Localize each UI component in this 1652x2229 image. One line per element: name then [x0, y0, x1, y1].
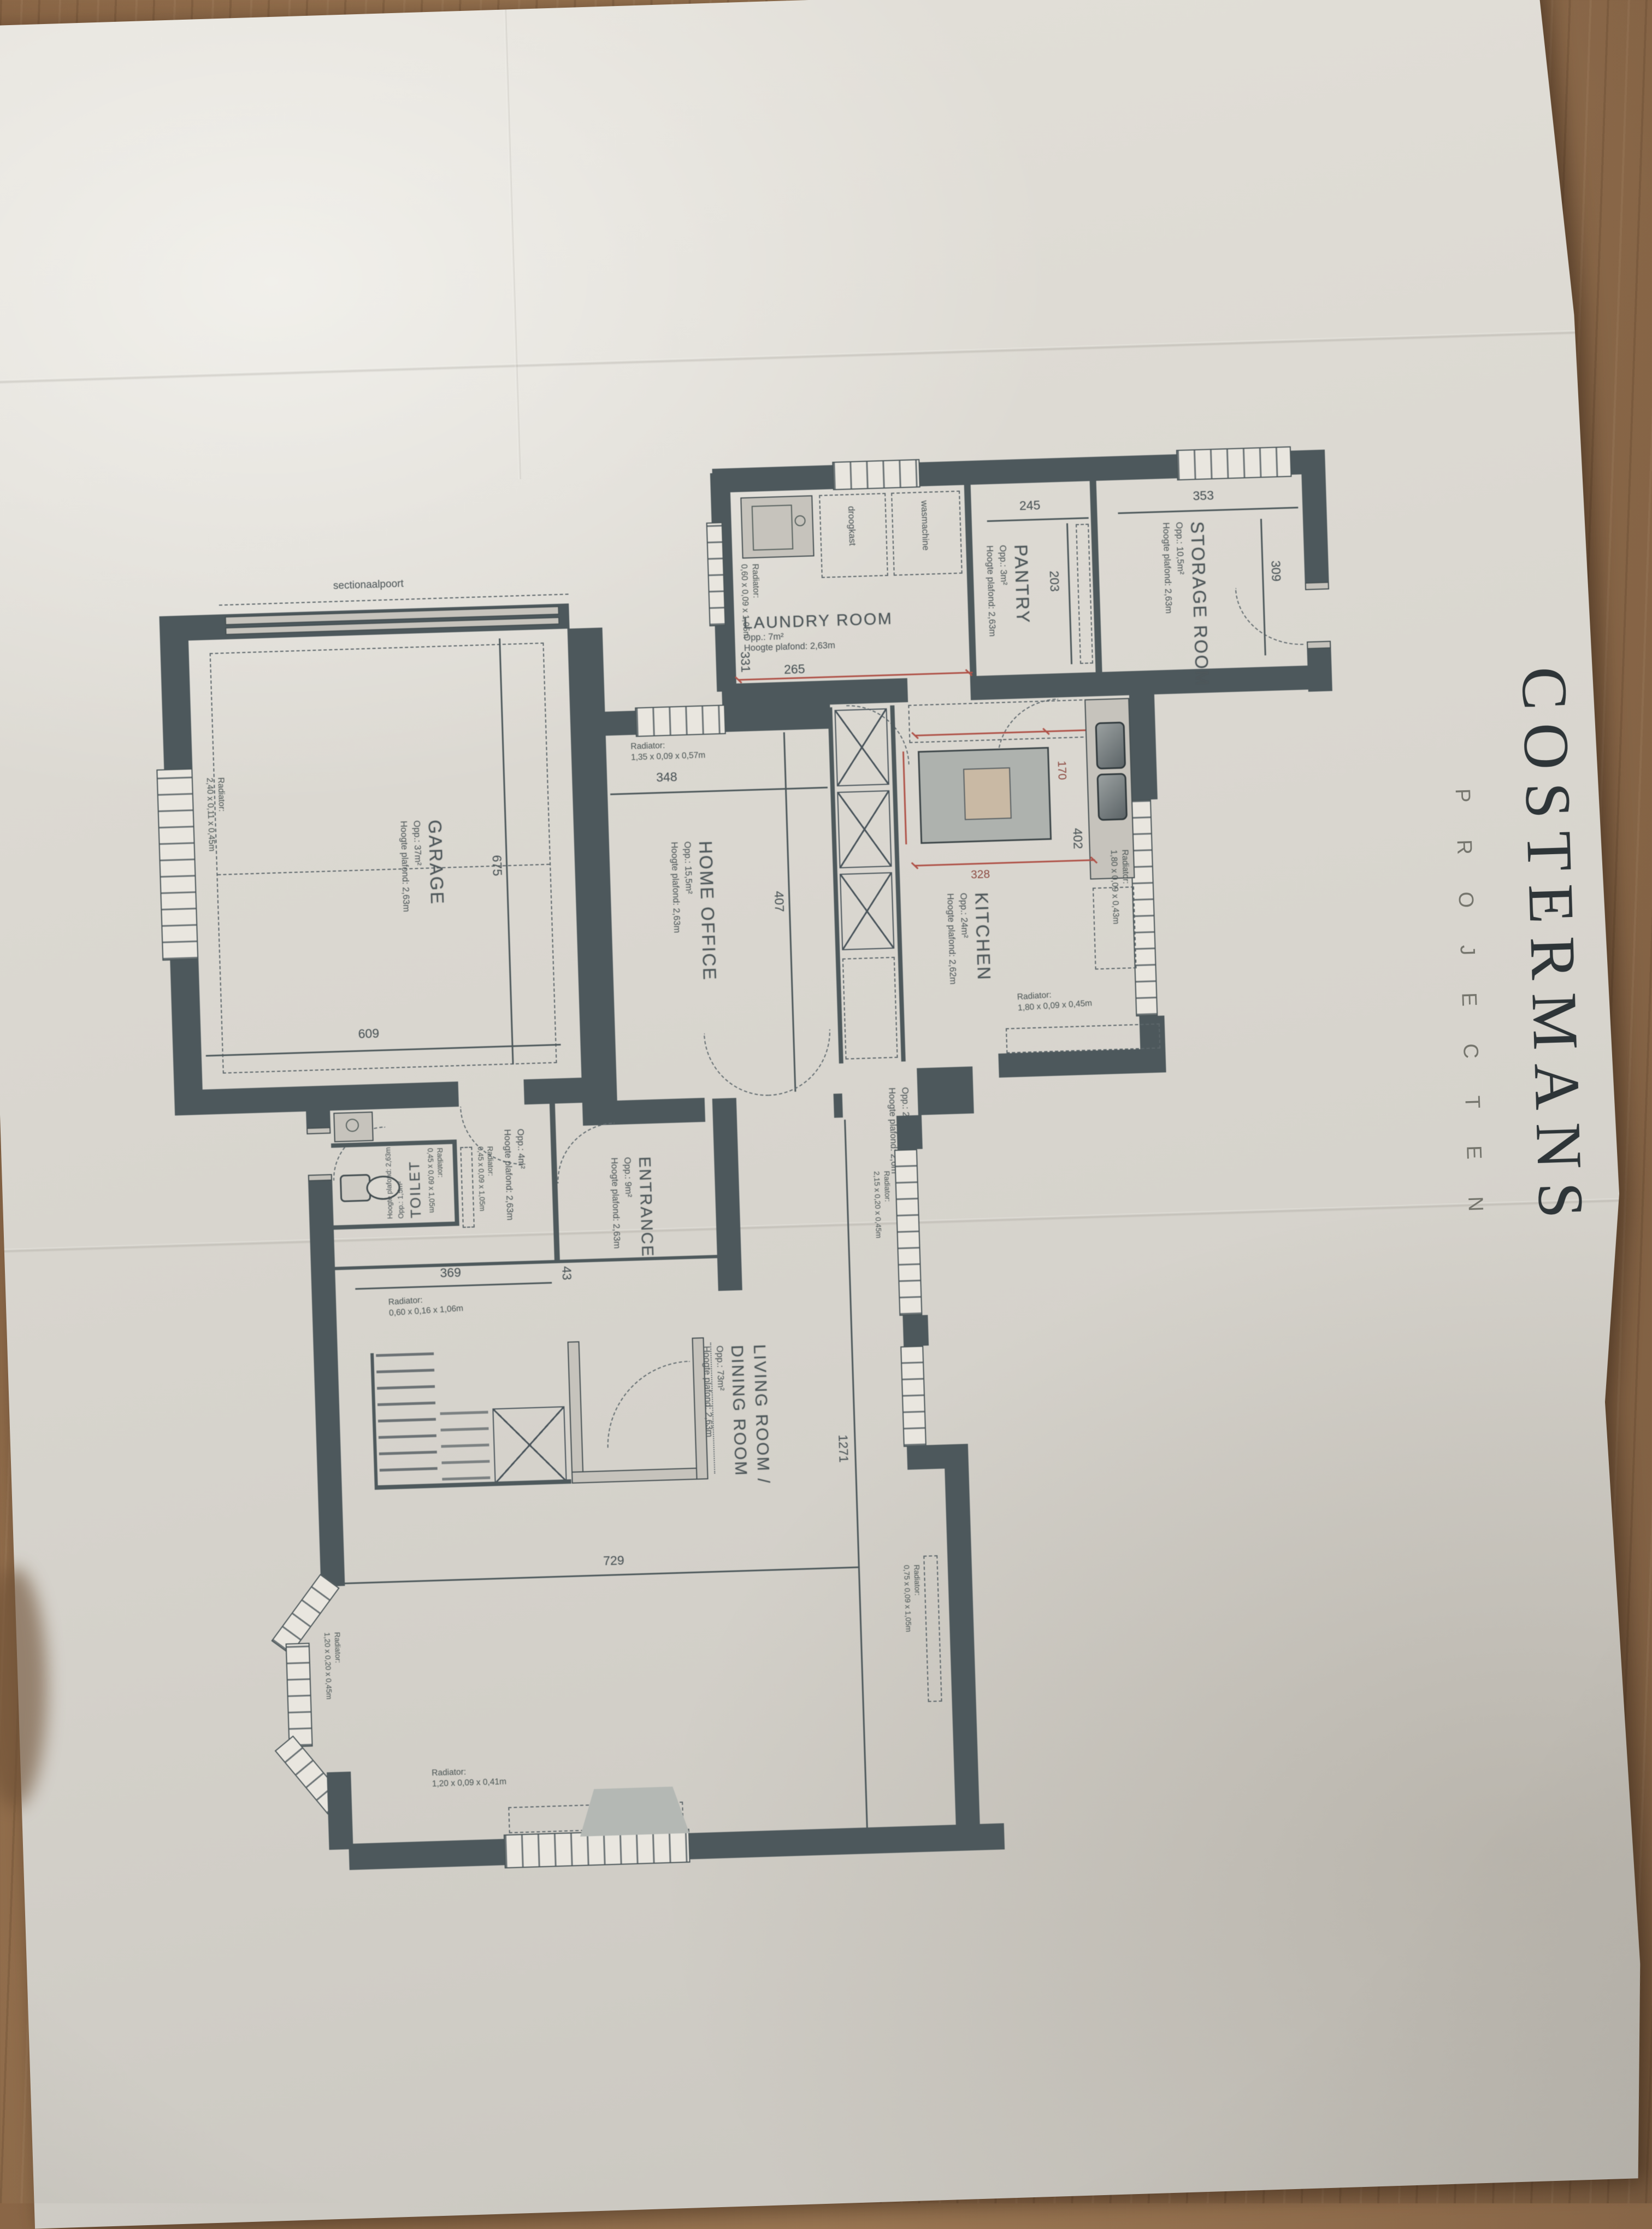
dim-label: 407: [771, 891, 787, 912]
radiator-label: Radiator: 1,80 x 0,09 x 0,45m: [1017, 987, 1093, 1014]
dim-label: 609: [358, 1026, 379, 1042]
radiator-label: Radiator: 1,20 x 0,09 x 0,41m: [432, 1766, 506, 1790]
room-area: Opp.: 73m²: [714, 1345, 729, 1486]
front-door-arc: [605, 1361, 693, 1449]
staircase: [440, 1411, 491, 1486]
wall-passage: [917, 1067, 974, 1115]
garage-parking-outline: [210, 643, 557, 1074]
dim-label: 203: [1047, 571, 1062, 592]
dim-label: 402: [1070, 828, 1085, 849]
wall-living-jog: [907, 1444, 969, 1469]
laundry-window: [832, 459, 921, 490]
wall-garage-bottom: [174, 1081, 459, 1115]
floor-plan: 353 309 STORAGE ROOM Opp.: 10,5m² Hoogte…: [56, 415, 1403, 1963]
built-in-closet: [837, 790, 892, 868]
side-door-jamb: [306, 1127, 331, 1134]
living-window-right: [900, 1346, 927, 1447]
dim-label: 265: [784, 662, 805, 677]
room-name: HOME OFFICE: [695, 840, 720, 981]
storage-door-arc: [1235, 586, 1303, 647]
room-label-garage: GARAGE Opp.: 37m² Hoogte plafond: 2,63m: [395, 820, 447, 913]
wall-office-bottom: [617, 1098, 705, 1125]
wall-living-right: [896, 1115, 923, 1150]
dim-label: 348: [656, 769, 677, 785]
dim-label: 369: [440, 1265, 461, 1280]
red-dim-line: [914, 859, 1095, 866]
kitchen-sink: [1096, 773, 1128, 821]
room-label-laundry: LAUNDRY ROOM Opp.: 7m² Hoogte plafond: 2…: [743, 610, 894, 654]
built-in-closet: [840, 872, 894, 950]
bay-window: [286, 1643, 313, 1747]
dim-label: 729: [603, 1553, 624, 1568]
room-ceiling: Hoogte plafond: 2,63m: [383, 1147, 394, 1219]
dim-label: 43: [559, 1266, 574, 1280]
room-ceiling: Hoogte plafond: 2,63m: [609, 1157, 622, 1259]
room-name: STORAGE ROOM: [1187, 521, 1212, 687]
pantry-shelving: [1076, 524, 1093, 664]
brand-logo: COSTERMANS: [1507, 666, 1605, 1433]
dim-label: 309: [1268, 560, 1283, 581]
laundry-window-left: [706, 522, 726, 626]
radiator-label: Radiator: 2,15 x 0,20 x 0,45m: [872, 1171, 894, 1238]
room-name: KITCHEN: [971, 892, 994, 984]
dim-line: [1118, 507, 1298, 514]
dim-line: [355, 1282, 552, 1290]
room-label-toilet: Hoogte plafond: 2,63m Opp.: 1,5m² TOILET: [383, 1146, 427, 1219]
fireplace: [579, 1786, 689, 1837]
room-name: TOILET: [405, 1146, 424, 1218]
wall-garage-bottom: [523, 1077, 617, 1104]
room-ceiling: Hoogte plafond: 2,63m: [398, 821, 411, 912]
dim-label: 675: [489, 855, 505, 876]
room-area: Opp.: 9m²: [622, 1157, 635, 1258]
porch-wall: [571, 1467, 709, 1484]
radiator-label: Radiator: 0,60 x 0,16 x 1,06m: [388, 1292, 464, 1319]
garage-door-label: sectionaalpoort: [333, 578, 404, 592]
room-area: Opp.: 1,5m²: [394, 1146, 405, 1219]
room-ceiling: Hoogte plafond: 2,63m: [1160, 522, 1176, 688]
radiator-label: Radiator: 1,20 x 0,20 x 0,45m: [322, 1632, 344, 1699]
staircase: [376, 1352, 438, 1487]
dim-line: [1066, 524, 1072, 664]
wall-toilet: [334, 1221, 459, 1230]
radiator-label: Radiator: 1,80 x 0,09 x 0,43m: [1108, 849, 1132, 924]
paper-fold-crease: [0, 328, 1629, 385]
room-ceiling: Hoogte plafond: 2,63m: [669, 842, 683, 982]
office-window: [635, 704, 726, 737]
wall-toilet: [452, 1139, 459, 1226]
paper: COSTERMANS PROJECTEN 353 309 STORAGE ROO…: [0, 0, 1652, 2228]
garage-window: [156, 768, 198, 961]
room-area: Opp.: 10,5m²: [1173, 522, 1189, 687]
stair-void: [492, 1406, 567, 1484]
built-in-cabinet: [842, 957, 898, 1060]
room-area: Opp.: 15,5m²: [682, 841, 697, 981]
wall-living-right: [902, 1315, 929, 1346]
room-ceiling: Hoogte plafond: 2,63m: [984, 545, 997, 637]
dim-line: [844, 1120, 868, 1827]
kitchen-sink: [1095, 721, 1126, 769]
wall-hall-left: [308, 1180, 335, 1269]
wall-pantry-bottom: [970, 672, 1102, 701]
wall-living-right-low: [945, 1468, 981, 1851]
dim-label: 1271: [835, 1434, 851, 1463]
dim-line: [987, 517, 1089, 522]
living-radiator-box: [923, 1555, 942, 1702]
wall-laundry-pantry: [964, 485, 977, 678]
room-name: DINING ROOM: [727, 1345, 751, 1485]
floorplan-sheet: COSTERMANS PROJECTEN 353 309 STORAGE ROO…: [0, 0, 1652, 2228]
wall-storage-bottom: [1099, 665, 1332, 696]
office-door-arc: [767, 1030, 833, 1096]
wall-hall-left: [306, 1111, 331, 1128]
radiator-label: Radiator: 1,35 x 0,09 x 0,57m: [630, 739, 705, 764]
wall-storage-right: [1301, 450, 1329, 589]
room-ceiling: Hoogte plafond: 2,62m: [945, 893, 958, 984]
brand-sublogo: PROJECTEN: [1450, 788, 1492, 1368]
room-area: Opp.: 24m²: [958, 893, 971, 984]
dim-line: [344, 1567, 859, 1585]
room-label-hall: Opp.: 4m² Hoogte plafond: 2,63m: [499, 1128, 528, 1220]
dim-label: 331: [737, 651, 753, 673]
storage-door-jamb: [1305, 582, 1329, 590]
room-area: Opp.: 4m²: [515, 1128, 528, 1220]
living-window-right: [894, 1149, 923, 1316]
porch-wall: [568, 1341, 584, 1484]
red-dim-line: [902, 751, 907, 844]
storage-door-jamb: [1307, 641, 1331, 649]
radiator-label: Radiator: 0,45 x 0,09 x 1,05m: [425, 1148, 446, 1213]
wall-living-left: [311, 1269, 345, 1586]
wall-kitchen-right: [1129, 695, 1158, 800]
storage-window: [1176, 446, 1292, 481]
wall-garage-office: [570, 711, 618, 1126]
wall-laundry-bottom: [722, 678, 908, 708]
room-area: Opp.: 3m²: [997, 545, 1010, 636]
wall-garage-right: [568, 627, 605, 713]
wall-kitchen-bottom: [998, 1048, 1166, 1078]
wall-office-bottom: [834, 1093, 843, 1118]
room-name: PANTRY: [1010, 544, 1034, 636]
appliance-label: droogkast: [846, 506, 857, 546]
laundry-sink: [752, 504, 794, 550]
office-door-arc: [704, 1031, 769, 1098]
room-name: ENTRANCE: [635, 1156, 657, 1258]
room-ceiling: Hoogte plafond: 2,63m: [701, 1346, 716, 1486]
paper-fold-crease: [504, 9, 521, 479]
radiator-label: Radiator: 0,75 x 0,09 x 1,05m: [902, 1565, 924, 1632]
room-label-living: LIVING ROOM / DINING ROOM Opp.: 73m² Hoo…: [698, 1344, 774, 1486]
dim-label-red: 328: [971, 868, 990, 881]
wall-living-left: [327, 1772, 353, 1850]
garage-door-dashed: [219, 593, 569, 605]
room-label-entrance: ENTRANCE Opp.: 9m² Hoogte plafond: 2,63m: [606, 1156, 657, 1259]
room-label-home-office: HOME OFFICE Opp.: 15,5m² Hoogte plafond:…: [666, 840, 720, 982]
room-ceiling: Hoogte plafond: 2,63m: [501, 1129, 515, 1220]
dim-line: [610, 787, 828, 796]
room-label-pantry: PANTRY Opp.: 3m² Hoogte plafond: 2,63m: [981, 544, 1034, 637]
dim-label: 353: [1193, 488, 1214, 503]
appliance-label: wasmachine: [919, 501, 931, 551]
room-name: LIVING ROOM /: [750, 1344, 774, 1484]
wall-hall-bottom: [335, 1255, 717, 1270]
hall-radiator-box: [460, 1146, 475, 1228]
room-label-storage: STORAGE ROOM Opp.: 10,5m² Hoogte plafond…: [1158, 521, 1212, 688]
room-name: GARAGE: [424, 820, 447, 911]
room-label-kitchen: KITCHEN Opp.: 24m² Hoogte plafond: 2,62m: [942, 892, 994, 985]
dim-label: 245: [1019, 498, 1041, 513]
wall-entrance-right: [712, 1098, 742, 1291]
island-cooktop: [963, 767, 1012, 820]
room-area: Opp.: 37m²: [411, 820, 424, 911]
built-in-closet: [834, 708, 889, 786]
dim-label-red: 170: [1055, 761, 1069, 780]
radiator-label: Radiator: 0,45 x 0,09 x 1,05m: [475, 1146, 497, 1211]
